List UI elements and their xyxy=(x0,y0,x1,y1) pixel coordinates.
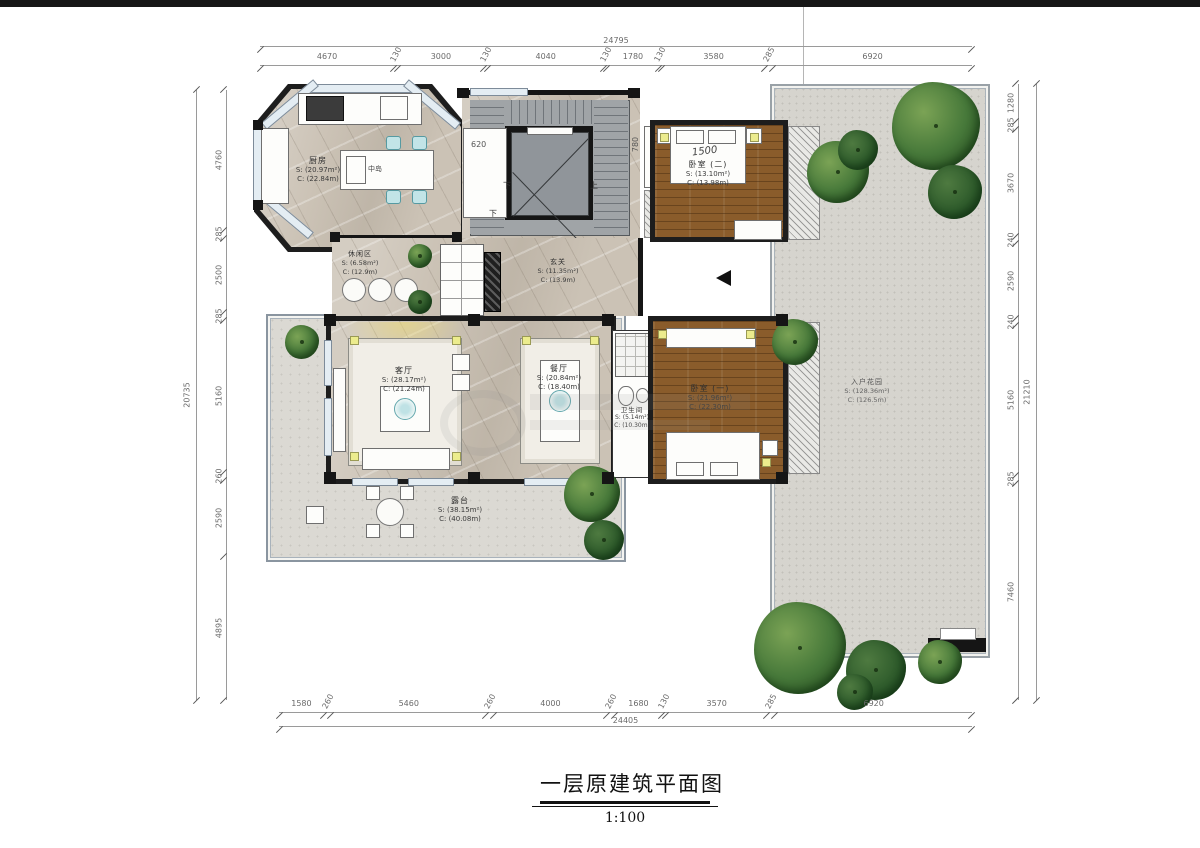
dim-bottom-segments: 158026054602604000260168013035702856920 xyxy=(279,698,972,713)
dim-segment-value: 3570 xyxy=(706,699,726,708)
terrace-chair xyxy=(366,524,380,538)
island-stool xyxy=(412,136,427,150)
title-rule-thin xyxy=(532,806,718,807)
dim-segment-value: 4000 xyxy=(540,699,560,708)
dim-segment: 285 xyxy=(765,51,773,65)
dim-segment: 285 xyxy=(1004,121,1018,129)
dim-segment: 2590 xyxy=(1004,243,1018,318)
dim-segment: 3670 xyxy=(1004,129,1018,236)
stair-up-label: 上 xyxy=(590,180,598,191)
dim-segment: 260 xyxy=(324,698,331,712)
hall-top-window xyxy=(470,88,528,96)
dim-segment: 1680 xyxy=(615,698,663,712)
dim-segment: 1780 xyxy=(607,51,658,65)
tree xyxy=(918,640,962,684)
title-block: 一层原建筑平面图 1:100 xyxy=(540,768,710,826)
corridor-top-wall xyxy=(332,235,458,238)
niche-dim-780: 780 xyxy=(631,137,640,152)
dim-segment: 240 xyxy=(1004,318,1018,325)
floor-plan-canvas: 中岛 厨房 S: (20.97m²) C: (22.84m) 620 780 下… xyxy=(0,0,1200,848)
closet-dim-620: 620 xyxy=(471,140,486,149)
light-marker xyxy=(746,330,755,339)
garden-entry-gate xyxy=(940,628,976,640)
bedroom1-nightstand xyxy=(762,440,778,456)
dim-left-total: 20735 xyxy=(196,90,197,700)
elevator-door xyxy=(527,127,573,135)
bedroom1-pillow xyxy=(676,462,704,476)
dim-segment: 4040 xyxy=(488,51,604,65)
terrace-table xyxy=(376,498,404,526)
bedroom2-bench xyxy=(734,220,782,240)
living-sofa xyxy=(362,448,450,470)
dim-segment-value: 6920 xyxy=(862,52,882,61)
living-armchair xyxy=(452,354,470,371)
dim-segment: 5160 xyxy=(1004,325,1018,475)
lounge-chair xyxy=(342,278,366,302)
living-window-left xyxy=(324,398,332,456)
dim-segment-value: 3580 xyxy=(703,52,723,61)
stair-landing-top xyxy=(504,100,594,124)
light-marker xyxy=(350,452,359,461)
dim-top-total: 24795 xyxy=(260,32,972,47)
decor-console xyxy=(484,252,501,312)
living-tv-cabinet xyxy=(333,368,346,452)
dim-segment-value: 2590 xyxy=(1007,270,1016,290)
living-window-bottom xyxy=(408,478,454,486)
light-marker xyxy=(762,458,771,467)
dim-segment-value: 1280 xyxy=(1007,92,1016,112)
light-marker xyxy=(522,336,531,345)
terrace-chair xyxy=(366,486,380,500)
lounge-chair xyxy=(368,278,392,302)
foyer-label: 玄关 S: (11.35m²) C: (13.9m) xyxy=(528,258,588,284)
dim-segment: 3000 xyxy=(398,51,484,65)
title-rule-thick xyxy=(540,801,710,804)
dim-segment: 1580 xyxy=(279,698,324,712)
terrace-planter xyxy=(306,506,324,524)
column xyxy=(602,472,614,484)
dim-segment: 7460 xyxy=(1004,483,1018,700)
living-ceiling-fan xyxy=(394,398,416,420)
dim-segment: 285 xyxy=(1004,475,1018,483)
bedroom2-pillow xyxy=(708,130,736,144)
lounge-label: 休闲区 S: (6.58m²) C: (12.9m) xyxy=(330,250,390,276)
terrace-label: 露台 S: (38.15m²) C: (40.08m) xyxy=(428,496,492,525)
entry-arrow xyxy=(716,270,731,286)
bedroom1-dresser xyxy=(666,328,756,348)
leader-line xyxy=(803,7,804,89)
living-window-left xyxy=(324,340,332,386)
bedroom2-pillow xyxy=(676,130,704,144)
watermark-shape xyxy=(530,394,750,410)
hall-cabinet xyxy=(440,244,484,316)
dim-segment-value: 5160 xyxy=(215,386,224,406)
column xyxy=(776,472,788,484)
light-marker xyxy=(452,452,461,461)
stove xyxy=(306,96,344,121)
island-stool xyxy=(386,136,401,150)
living-label: 客厅 S: (28.17m²) C: (21.24m) xyxy=(372,366,436,395)
column xyxy=(468,472,480,484)
dim-segment: 1280 xyxy=(1004,84,1018,121)
terrace-chair xyxy=(400,524,414,538)
light-marker xyxy=(660,133,669,142)
dim-segment: 2590 xyxy=(212,480,226,556)
dim-left-segments: 47602852500285516026025904895 xyxy=(212,90,227,700)
kitchen-counter-left xyxy=(261,128,289,204)
island-label: 中岛 xyxy=(368,164,382,174)
living-window-bottom xyxy=(352,478,398,486)
column xyxy=(330,232,340,242)
sheet-top-bar xyxy=(0,0,1200,7)
dim-segment-value: 4670 xyxy=(317,52,337,61)
kitchen-label: 厨房 S: (20.97m²) C: (22.84m) xyxy=(286,156,350,185)
dim-segment-value: 7460 xyxy=(1007,581,1016,601)
column xyxy=(452,232,462,242)
dim-segment-value: 3670 xyxy=(1007,173,1016,193)
dim-segment-value: 1580 xyxy=(291,699,311,708)
elevator-car xyxy=(511,132,589,216)
column xyxy=(324,472,336,484)
dim-segment: 285 xyxy=(212,230,226,238)
kitchen-window-top xyxy=(310,84,412,93)
light-marker xyxy=(590,336,599,345)
dim-segment-value: 4760 xyxy=(215,150,224,170)
dim-segment: 4895 xyxy=(212,556,226,700)
column xyxy=(253,200,263,210)
watermark xyxy=(440,380,760,450)
dim-segment: 2500 xyxy=(212,238,226,312)
kitchen-sink xyxy=(380,96,408,120)
watermark-shape xyxy=(530,420,710,430)
dim-segment: 5160 xyxy=(212,320,226,472)
dim-right-segments: 12802853670240259024051602857460 xyxy=(1004,84,1019,700)
bedroom2-label: 卧室 (二) S: (13.10m²) C: (13.98m) xyxy=(676,160,740,189)
dim-segment: 240 xyxy=(1004,236,1018,243)
column xyxy=(253,120,263,130)
dim-bottom-total: 24405 xyxy=(279,712,972,727)
terrace-chair xyxy=(400,486,414,500)
dim-segment-value: 1680 xyxy=(628,699,648,708)
light-marker xyxy=(658,330,667,339)
dim-segment: 4760 xyxy=(212,90,226,230)
column xyxy=(628,88,640,98)
dim-right-total: 21210 xyxy=(1036,84,1037,700)
watermark-shape xyxy=(440,390,526,456)
stair-down2-label: 下 xyxy=(489,208,497,219)
drawing-scale: 1:100 xyxy=(540,810,710,826)
column xyxy=(457,88,469,98)
light-marker xyxy=(350,336,359,345)
garden-label: 入户花园 S: (128.36m²) C: (126.5m) xyxy=(832,378,902,404)
column xyxy=(602,314,614,326)
stair-down-label: 下 xyxy=(503,180,511,191)
dim-top-segments: 467013030001304040130178013035802856920 xyxy=(260,51,972,66)
dim-segment: 260 xyxy=(607,698,614,712)
dim-segment: 285 xyxy=(767,698,775,712)
dim-segment: 3570 xyxy=(666,698,767,712)
dim-segment-value: 5160 xyxy=(1007,390,1016,410)
island-stool xyxy=(386,190,401,204)
dim-segment-value: 3000 xyxy=(431,52,451,61)
dim-segment: 285 xyxy=(212,312,226,320)
dim-segment: 6920 xyxy=(773,51,972,65)
dim-segment-value: 5460 xyxy=(399,699,419,708)
bath-shower xyxy=(615,333,651,377)
column xyxy=(468,314,480,326)
dim-segment-value: 4895 xyxy=(215,618,224,638)
dim-segment: 260 xyxy=(486,698,493,712)
dim-segment: 260 xyxy=(212,472,226,480)
dim-segment-value: 1780 xyxy=(623,52,643,61)
dim-segment: 5460 xyxy=(331,698,486,712)
dim-segment-value: 4040 xyxy=(535,52,555,61)
foyer-right-wall xyxy=(638,238,643,316)
dim-segment: 6920 xyxy=(775,698,971,712)
stair-flight-right xyxy=(594,100,628,234)
tree xyxy=(754,602,846,694)
dim-segment: 4000 xyxy=(494,698,608,712)
island-stool xyxy=(412,190,427,204)
column xyxy=(776,314,788,326)
drawing-title: 一层原建筑平面图 xyxy=(540,768,710,798)
dim-segment-value: 6920 xyxy=(863,699,883,708)
dim-segment-value: 2500 xyxy=(215,265,224,285)
dim-segment: 4670 xyxy=(260,51,394,65)
light-marker xyxy=(452,336,461,345)
dim-segment: 3580 xyxy=(662,51,765,65)
column xyxy=(324,314,336,326)
bedroom1-pillow xyxy=(710,462,738,476)
light-marker xyxy=(750,133,759,142)
dim-segment-value: 2590 xyxy=(215,508,224,528)
